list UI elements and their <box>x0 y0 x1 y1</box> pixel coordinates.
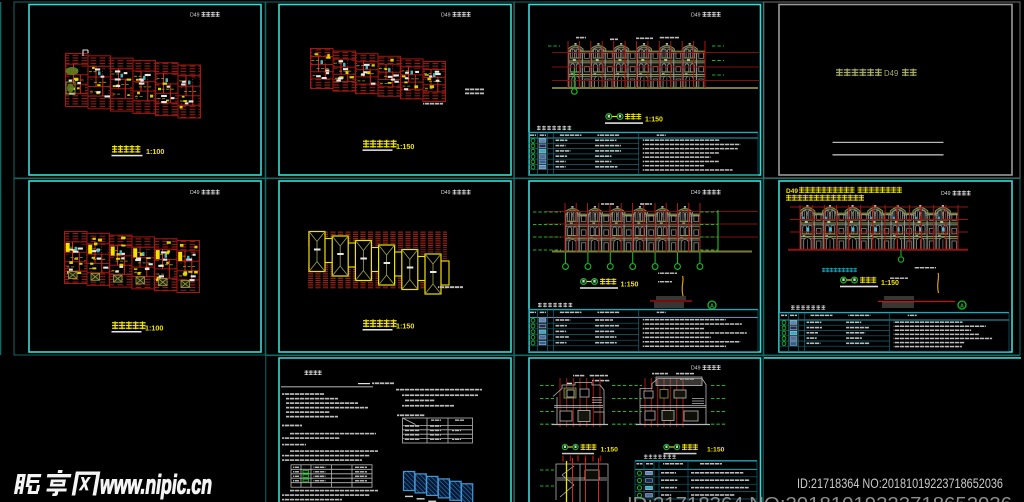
svg-text:1:150: 1:150 <box>881 280 899 287</box>
svg-text:1:100: 1:100 <box>146 147 164 156</box>
svg-text:D49: D49 <box>691 12 701 18</box>
svg-text:D49: D49 <box>786 188 798 195</box>
svg-text:D49: D49 <box>441 190 451 196</box>
svg-text:D49: D49 <box>884 69 898 78</box>
svg-text:1:150: 1:150 <box>645 117 663 124</box>
svg-text:D49: D49 <box>941 191 951 197</box>
svg-text:ID:21718364 NO:201810192237186: ID:21718364 NO:20181019223718652036 <box>797 475 1003 491</box>
svg-text:D49: D49 <box>190 190 200 196</box>
svg-text:A: A <box>960 303 964 309</box>
svg-text:D49: D49 <box>691 366 701 372</box>
svg-text:1:150: 1:150 <box>396 142 414 151</box>
svg-text:D49: D49 <box>691 190 701 196</box>
svg-text:D49: D49 <box>190 12 200 18</box>
svg-text:1:100: 1:100 <box>145 323 163 332</box>
svg-text:D49: D49 <box>441 12 451 18</box>
svg-text:ID:21718364 NO:201810192237186: ID:21718364 NO:20181019223718652036 <box>627 493 1012 502</box>
svg-text:www.nipic.cn: www.nipic.cn <box>100 470 212 500</box>
svg-text:1:150: 1:150 <box>396 321 414 330</box>
svg-text:A: A <box>710 303 714 309</box>
svg-text:1:150: 1:150 <box>621 282 639 289</box>
svg-text:1:150: 1:150 <box>707 447 725 454</box>
svg-text:1:150: 1:150 <box>601 447 619 454</box>
